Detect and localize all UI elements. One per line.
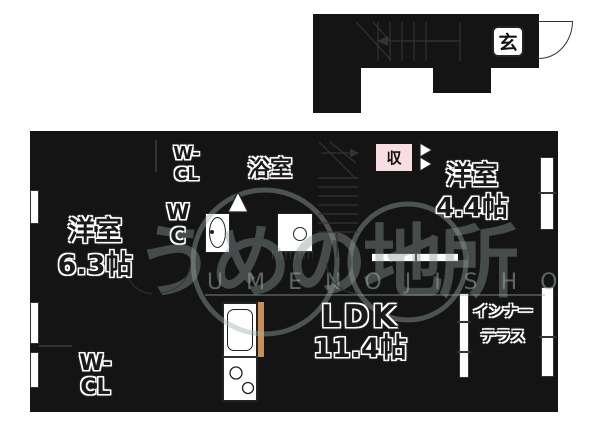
wall-segment [433, 61, 491, 93]
wall-segment [313, 14, 361, 113]
window-mullion [539, 336, 556, 338]
storage-label: 収 [386, 147, 401, 168]
washing-machine-pan-edge [272, 251, 313, 259]
bathroom-label: 浴室 [228, 150, 312, 184]
entrance-door-arc [539, 21, 573, 59]
wall-segment [458, 253, 558, 262]
walkin-closet-upper-label: W- CL [158, 142, 215, 188]
bedroom-63-label: 洋室 6.3帖 [35, 203, 155, 295]
washbasin-faucet [210, 230, 214, 234]
kitchen-divider [223, 356, 257, 358]
closet-boundary-line [39, 345, 72, 347]
wall-segment [215, 140, 228, 205]
wall-segment [215, 205, 228, 213]
wall-segment [192, 253, 230, 262]
walkin-closet-lower-label: W- CL [39, 351, 152, 401]
kitchen-sink [227, 309, 253, 351]
window [30, 302, 39, 344]
wall-segment [158, 190, 215, 196]
wall-segment [358, 140, 372, 262]
bedroom-44-label: 洋室 4.4帖 [402, 156, 542, 228]
kitchen-wall-stub [258, 357, 274, 403]
sliding-door-center-line [415, 253, 417, 262]
entrance-label: 玄 [498, 28, 517, 55]
window [30, 352, 39, 388]
entrance-label-box: 玄 [492, 26, 524, 57]
wall-segment [152, 294, 160, 347]
ldk-label: LDK 11.4帖 [285, 300, 435, 364]
wc-label: W C [158, 199, 198, 251]
closet-boundary-line [155, 140, 157, 172]
kitchen-counter-edge [258, 302, 264, 357]
wall-segment [248, 205, 312, 213]
inner-terrace-label: インナー テラス [466, 288, 540, 360]
wall-segment [198, 196, 205, 253]
washing-machine-drain [293, 227, 307, 241]
window [541, 287, 554, 377]
wall-segment [313, 253, 326, 262]
floorplan: 玄 収 [0, 0, 600, 428]
